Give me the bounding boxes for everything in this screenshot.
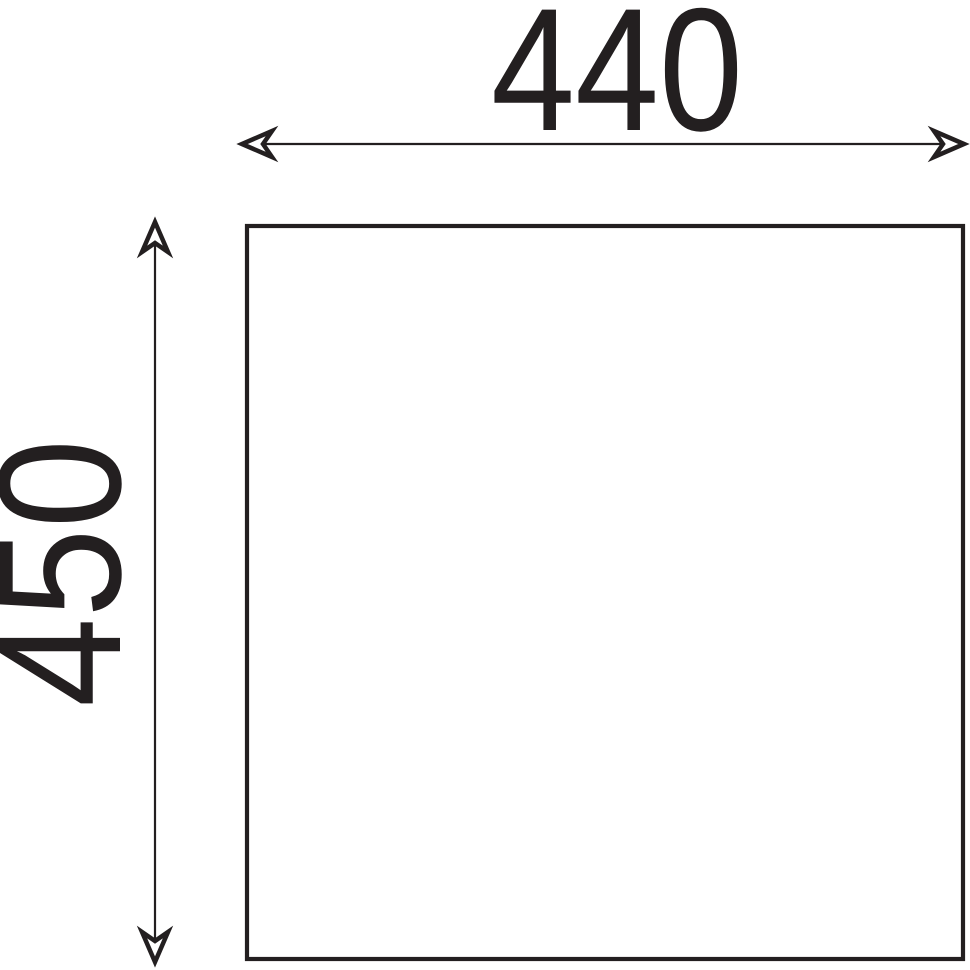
height-dimension: 450 xyxy=(0,222,168,962)
width-dimension: 440 xyxy=(242,0,964,168)
dimension-drawing-canvas: 440 450 xyxy=(0,0,970,970)
object-outline-rect xyxy=(247,226,963,959)
dimension-drawing: 440 450 xyxy=(0,0,970,970)
width-dimension-label: 440 xyxy=(491,0,743,168)
height-dimension-label: 450 xyxy=(0,439,158,707)
